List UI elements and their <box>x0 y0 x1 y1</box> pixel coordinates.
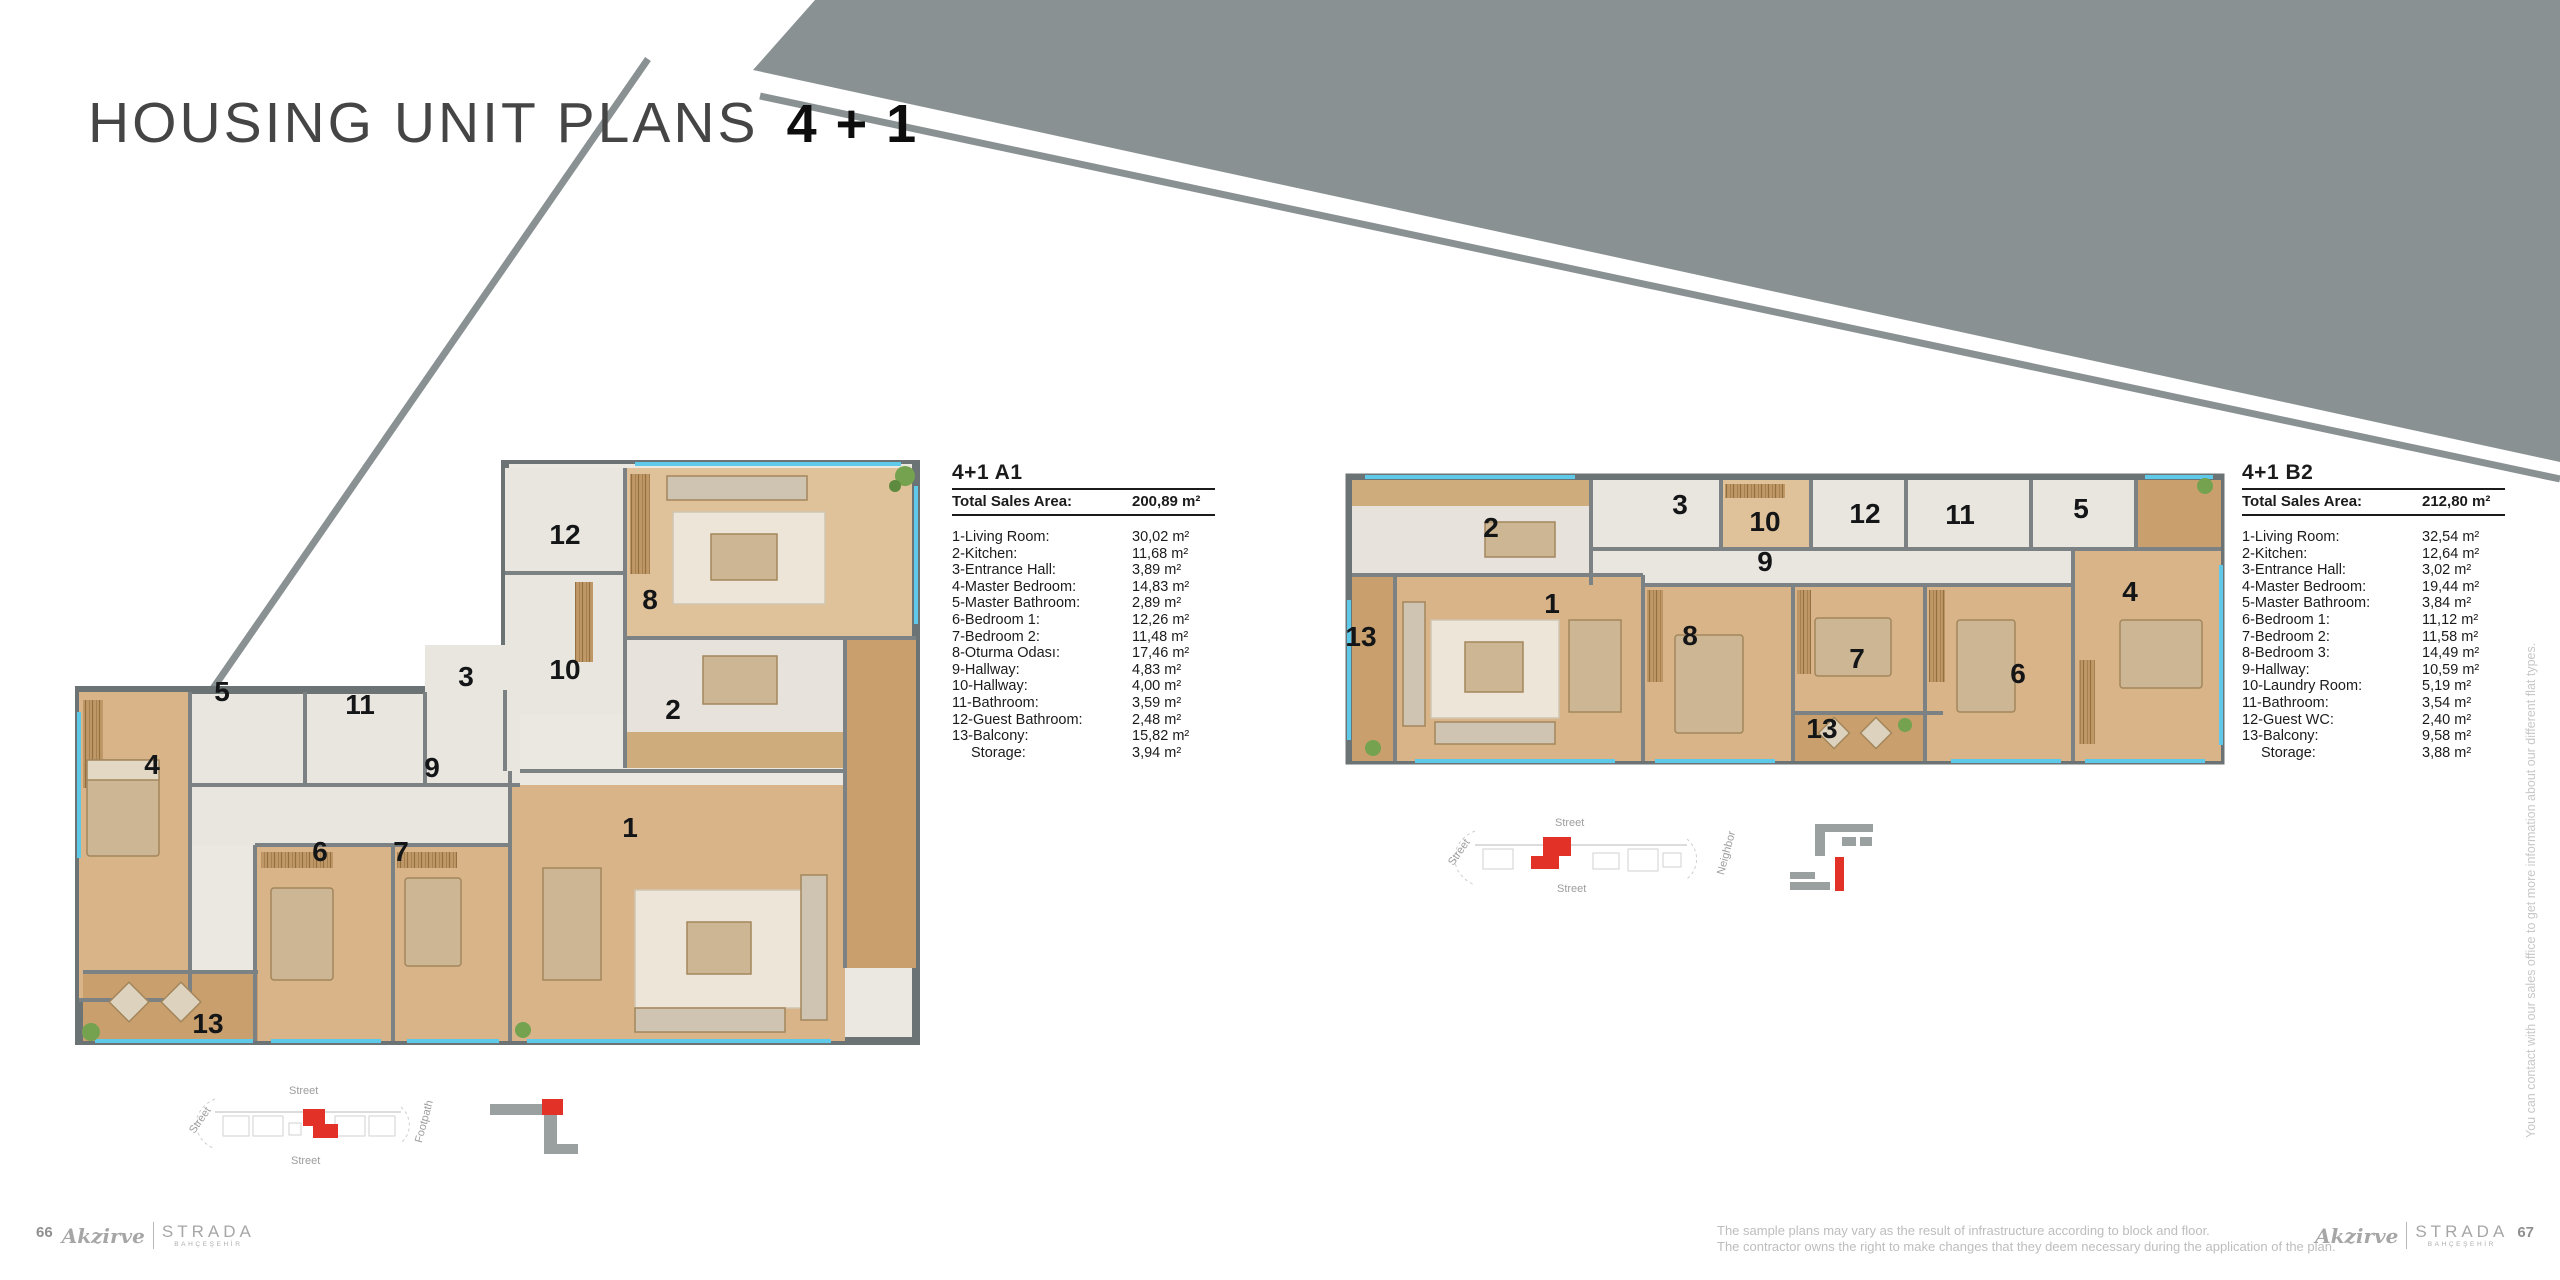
legend-room-row: 11-Bathroom: 3,59 m² <box>952 695 1215 712</box>
street-label-top: Street <box>1555 817 1584 829</box>
strada-logo-sub: BAHÇEŞEHİR <box>174 1242 242 1249</box>
room-label: Storage: <box>971 745 1026 761</box>
room-area: 4,00 m² <box>1132 678 1181 695</box>
total-sales-area-value: 212,80 m² <box>2422 493 2490 510</box>
room-number: 9 <box>424 754 440 782</box>
site-map-a1: Street Street Street Footpath <box>185 1083 445 1173</box>
room-label: 5-Master Bathroom: <box>952 595 1080 611</box>
room-label: 9-Hallway: <box>2242 662 2310 678</box>
page-title: HOUSING UNIT PLANS 4 + 1 <box>88 90 918 156</box>
room-number: 10 <box>549 656 580 684</box>
room-area: 11,58 m² <box>2422 629 2478 646</box>
strada-logo: STRADA <box>162 1223 255 1240</box>
room-area: 15,82 m² <box>1132 728 1189 745</box>
room-label: 1-Living Room: <box>2242 529 2340 545</box>
legend-room-row: 7-Bedroom 2: 11,58 m² <box>2242 629 2505 646</box>
room-area: 3,94 m² <box>1132 745 1181 762</box>
room-number: 12 <box>549 521 580 549</box>
room-area: 3,89 m² <box>1132 562 1181 579</box>
room-number: 13 <box>1345 623 1376 651</box>
room-area: 30,02 m² <box>1132 529 1189 546</box>
legend-room-row: 13-Balcony: 9,58 m² <box>2242 728 2505 745</box>
brand-logo-left: Akzirve STRADA BAHÇEŞEHİR <box>62 1222 255 1249</box>
disclaimer-line-1: The sample plans may vary as the result … <box>1717 1223 2336 1239</box>
room-area: 11,48 m² <box>1132 629 1188 646</box>
street-label-bottom: Street <box>291 1155 320 1167</box>
key-plan-b2 <box>1790 820 1905 900</box>
room-number: 6 <box>312 838 328 866</box>
legend-room-row: 6-Bedroom 1: 11,12 m² <box>2242 612 2505 629</box>
room-area: 12,26 m² <box>1132 612 1189 629</box>
highlighted-unit <box>1835 857 1844 891</box>
brand-logo-right: Akzirve STRADA BAHÇEŞEHİR <box>2315 1222 2508 1249</box>
legend-room-row: 4-Master Bedroom: 19,44 m² <box>2242 579 2505 596</box>
room-number: 8 <box>642 586 658 614</box>
floor-plan-a1: 12810325119467113 <box>75 460 920 1045</box>
room-area: 3,88 m² <box>2422 745 2471 762</box>
room-number: 9 <box>1757 548 1773 576</box>
room-number: 11 <box>1945 501 1975 529</box>
room-label: 2-Kitchen: <box>2242 546 2307 562</box>
floor-plan-b2-drawing <box>1345 470 2225 765</box>
room-area: 3,59 m² <box>1132 695 1181 712</box>
room-area: 5,19 m² <box>2422 678 2471 695</box>
street-label-top: Street <box>289 1085 318 1097</box>
legend-b2: 4+1 B2 Total Sales Area: 212,80 m² 1-Liv… <box>2242 461 2505 761</box>
legend-room-row: 3-Entrance Hall: 3,89 m² <box>952 562 1215 579</box>
room-label: 7-Bedroom 2: <box>2242 629 2330 645</box>
room-label: 2-Kitchen: <box>952 546 1017 562</box>
room-number: 12 <box>1849 500 1880 528</box>
room-number: 11 <box>345 691 375 719</box>
legend-room-row: 9-Hallway: 10,59 m² <box>2242 662 2505 679</box>
room-label: 6-Bedroom 1: <box>952 612 1040 628</box>
room-label: 11-Bathroom: <box>2242 695 2329 711</box>
room-number: 1 <box>622 814 638 842</box>
room-label: 1-Living Room: <box>952 529 1050 545</box>
room-number: 7 <box>1849 645 1865 673</box>
floor-plan-b2: 2310121159131876413 <box>1345 470 2225 765</box>
site-map-b2: Street Street Street Neighbor <box>1443 813 1733 913</box>
room-label: 11-Bathroom: <box>952 695 1039 711</box>
page-title-text: HOUSING UNIT PLANS <box>88 90 759 156</box>
room-area: 17,46 m² <box>1132 645 1189 662</box>
highlighted-block <box>1531 837 1571 869</box>
legend-room-row: 1-Living Room: 32,54 m² <box>2242 529 2505 546</box>
footer-right: Akzirve STRADA BAHÇEŞEHİR 67 <box>2315 1222 2534 1249</box>
page-title-suffix: 4 + 1 <box>787 93 919 155</box>
room-area: 4,83 m² <box>1132 662 1181 679</box>
room-label: Storage: <box>2261 745 2316 761</box>
legend-room-row: 10-Hallway: 4,00 m² <box>952 678 1215 695</box>
total-sales-area-label: Total Sales Area: <box>2242 493 2362 510</box>
disclaimer: The sample plans may vary as the result … <box>1717 1223 2336 1255</box>
legend-b2-title: 4+1 B2 <box>2242 461 2505 485</box>
akzirve-logo: Akzirve <box>62 1224 145 1248</box>
page-number-right: 67 <box>2517 1222 2534 1241</box>
side-note: You can contact with our sales office to… <box>2524 548 2538 1138</box>
legend-room-row: 6-Bedroom 1: 12,26 m² <box>952 612 1215 629</box>
room-area: 32,54 m² <box>2422 529 2479 546</box>
room-number: 7 <box>393 838 409 866</box>
site-map-b2-drawing <box>1443 813 1733 913</box>
legend-b2-total-row: Total Sales Area: 212,80 m² <box>2242 488 2505 516</box>
room-number: 8 <box>1682 622 1698 650</box>
room-number: 6 <box>2010 660 2026 688</box>
strada-logo: STRADA <box>2415 1223 2508 1240</box>
legend-room-row: 10-Laundry Room: 5,19 m² <box>2242 678 2505 695</box>
total-sales-area-label: Total Sales Area: <box>952 493 1072 510</box>
room-number: 13 <box>192 1010 223 1038</box>
room-label: 9-Hallway: <box>952 662 1020 678</box>
room-area: 2,89 m² <box>1132 595 1181 612</box>
legend-room-row: 12-Guest WC: 2,40 m² <box>2242 712 2505 729</box>
room-number: 5 <box>214 678 230 706</box>
room-label: 3-Entrance Hall: <box>2242 562 2346 578</box>
legend-room-row: 9-Hallway: 4,83 m² <box>952 662 1215 679</box>
thin-diagonal-right <box>760 96 2560 479</box>
strada-logo-sub: BAHÇEŞEHİR <box>2428 1242 2496 1249</box>
room-number: 3 <box>1672 491 1688 519</box>
room-label: 13-Balcony: <box>2242 728 2319 744</box>
room-number: 1 <box>1544 590 1560 618</box>
footer-left: 66 Akzirve STRADA BAHÇEŞEHİR <box>36 1222 255 1249</box>
room-label: 8-Bedroom 3: <box>2242 645 2330 661</box>
room-number: 5 <box>2073 495 2089 523</box>
legend-a1-room-list: 1-Living Room: 30,02 m² 2-Kitchen: 11,68… <box>952 529 1215 761</box>
street-label-bottom: Street <box>1557 883 1586 895</box>
room-label: 5-Master Bathroom: <box>2242 595 2370 611</box>
room-number: 3 <box>458 663 474 691</box>
room-area: 2,40 m² <box>2422 712 2471 729</box>
room-label: 8-Oturma Odası: <box>952 645 1060 661</box>
room-area: 2,48 m² <box>1132 712 1181 729</box>
legend-a1: 4+1 A1 Total Sales Area: 200,89 m² 1-Liv… <box>952 461 1215 761</box>
logo-divider <box>153 1222 154 1249</box>
legend-room-row: 7-Bedroom 2: 11,48 m² <box>952 629 1215 646</box>
legend-room-row: 8-Oturma Odası: 17,46 m² <box>952 645 1215 662</box>
room-number: 2 <box>665 696 681 724</box>
legend-room-row: 2-Kitchen: 11,68 m² <box>952 546 1215 563</box>
legend-room-row: 13-Balcony: 15,82 m² <box>952 728 1215 745</box>
room-label: 4-Master Bedroom: <box>952 579 1076 595</box>
legend-room-row: 3-Entrance Hall: 3,02 m² <box>2242 562 2505 579</box>
room-area: 9,58 m² <box>2422 728 2471 745</box>
room-number: 2 <box>1483 514 1499 542</box>
room-area: 3,54 m² <box>2422 695 2471 712</box>
room-label: 10-Laundry Room: <box>2242 678 2362 694</box>
room-area: 3,02 m² <box>2422 562 2471 579</box>
legend-room-row: 5-Master Bathroom: 3,84 m² <box>2242 595 2505 612</box>
legend-room-row: 5-Master Bathroom: 2,89 m² <box>952 595 1215 612</box>
legend-room-row: 8-Bedroom 3: 14,49 m² <box>2242 645 2505 662</box>
room-label: 10-Hallway: <box>952 678 1028 694</box>
total-sales-area-value: 200,89 m² <box>1132 493 1200 510</box>
highlighted-block <box>303 1109 338 1138</box>
room-area: 11,68 m² <box>1132 546 1188 563</box>
legend-a1-title: 4+1 A1 <box>952 461 1215 485</box>
floor-plan-a1-drawing <box>75 460 920 1045</box>
room-label: 12-Guest Bathroom: <box>952 712 1083 728</box>
room-label: 3-Entrance Hall: <box>952 562 1056 578</box>
disclaimer-line-2: The contractor owns the right to make ch… <box>1717 1239 2336 1255</box>
room-label: 7-Bedroom 2: <box>952 629 1040 645</box>
room-label: 6-Bedroom 1: <box>2242 612 2330 628</box>
room-area: 14,49 m² <box>2422 645 2479 662</box>
legend-room-row: Storage: 3,94 m² <box>952 745 1215 762</box>
room-area: 10,59 m² <box>2422 662 2479 679</box>
room-number: 4 <box>2122 578 2138 606</box>
brochure-page: HOUSING UNIT PLANS 4 + 1 <box>0 0 2560 1280</box>
legend-room-row: 4-Master Bedroom: 14,83 m² <box>952 579 1215 596</box>
highlighted-unit <box>542 1099 563 1115</box>
legend-b2-room-list: 1-Living Room: 32,54 m² 2-Kitchen: 12,64… <box>2242 529 2505 761</box>
legend-room-row: 12-Guest Bathroom: 2,48 m² <box>952 712 1215 729</box>
logo-divider <box>2406 1222 2407 1249</box>
room-area: 14,83 m² <box>1132 579 1189 596</box>
key-plan-a1 <box>488 1096 583 1163</box>
page-number-left: 66 <box>36 1222 53 1241</box>
akzirve-logo: Akzirve <box>2315 1224 2398 1248</box>
room-label: 4-Master Bedroom: <box>2242 579 2366 595</box>
room-number: 10 <box>1749 508 1780 536</box>
room-area: 12,64 m² <box>2422 546 2479 563</box>
room-area: 3,84 m² <box>2422 595 2471 612</box>
room-label: 12-Guest WC: <box>2242 712 2334 728</box>
legend-a1-total-row: Total Sales Area: 200,89 m² <box>952 488 1215 516</box>
legend-room-row: 2-Kitchen: 12,64 m² <box>2242 546 2505 563</box>
legend-room-row: Storage: 3,88 m² <box>2242 745 2505 762</box>
room-label: 13-Balcony: <box>952 728 1029 744</box>
legend-room-row: 11-Bathroom: 3,54 m² <box>2242 695 2505 712</box>
room-number: 13 <box>1806 715 1837 743</box>
gray-wedge <box>753 0 2560 462</box>
room-area: 11,12 m² <box>2422 612 2478 629</box>
room-number: 4 <box>144 751 160 779</box>
legend-room-row: 1-Living Room: 30,02 m² <box>952 529 1215 546</box>
room-area: 19,44 m² <box>2422 579 2479 596</box>
